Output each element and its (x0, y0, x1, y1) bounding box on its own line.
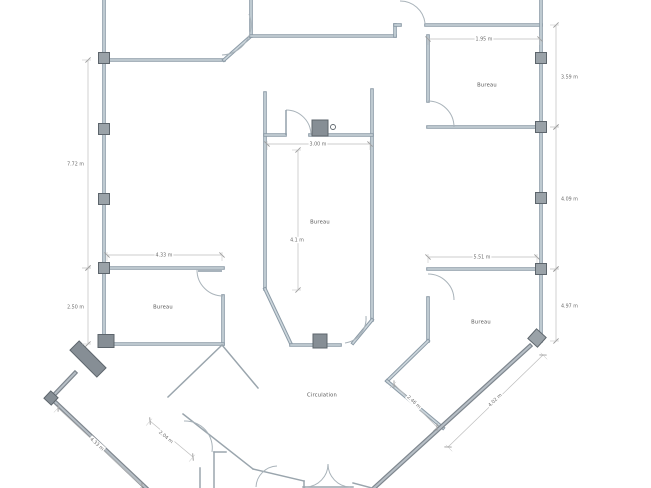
pillar (536, 122, 547, 133)
room-label-circulation: Circulation (307, 393, 337, 399)
dimension-label: 2.46 m (405, 394, 422, 410)
dimension-label: 1.95 m (476, 37, 493, 43)
dimension: 4.09 m (550, 124, 578, 271)
door-top-wall (400, 1, 425, 23)
dimension-label: 2.04 m (157, 430, 174, 446)
dimension-label: 3.59 m (561, 75, 578, 81)
pillar (99, 53, 110, 64)
dimension-label: 4.97 m (561, 304, 578, 310)
floor-plan-svg: 1.95 m3.59 m4.09 m4.97 m7.72 m2.50 m4.33… (0, 0, 651, 488)
dimension: 4.02 m (444, 353, 547, 451)
door-bureau-bottom-right (428, 274, 454, 300)
outlet-symbol (331, 125, 336, 130)
dimension: 1.95 m (425, 36, 542, 45)
pillar (99, 263, 110, 274)
pillar (99, 124, 110, 135)
door-bureau-center-top (286, 110, 311, 135)
dimension: 7.72 m (67, 57, 91, 270)
pillars-layer (44, 53, 547, 406)
wall-core (53, 373, 75, 396)
pillar (99, 194, 110, 205)
pillar (536, 264, 547, 275)
room-label-bureau-bottom-right: Bureau (471, 320, 491, 326)
dimension-label: 3.00 m (310, 142, 327, 148)
wall (168, 345, 222, 397)
wall-core (387, 341, 428, 381)
dimension-label: 2.50 m (67, 305, 84, 311)
dims-layer: 1.95 m3.59 m4.09 m4.97 m7.72 m2.50 m4.33… (54, 22, 578, 488)
door-bureau-top-right (428, 101, 454, 127)
dimension: 3.00 m (264, 141, 372, 150)
room-label-bureau-top-right: Bureau (477, 83, 497, 89)
dimension: 2.50 m (67, 265, 91, 346)
wall-core (265, 289, 291, 344)
entrance-double-door-left (306, 464, 328, 487)
dimension: 5.51 m (425, 254, 539, 263)
dimension: 4.97 m (550, 266, 578, 343)
pillar (98, 335, 114, 348)
pillar (536, 193, 547, 204)
dimension-label: 4.33 m (156, 253, 173, 259)
duct-box (312, 120, 328, 136)
doors-layer (184, 1, 454, 487)
dimension: 4.33 m (54, 404, 144, 488)
dimension-label: 7.72 m (67, 162, 84, 168)
door-bottom-small (256, 466, 277, 487)
dimension-label: 4.02 m (487, 392, 504, 408)
entrance-double-door-right (328, 464, 350, 487)
wall-core (374, 346, 530, 488)
wall (222, 345, 258, 388)
room-label-bureau-center: Bureau (310, 220, 330, 226)
pillar (536, 53, 547, 64)
door-bureau-center-bottom (345, 316, 366, 343)
dimension: 2.04 m (146, 417, 195, 461)
dimension-label: 4.09 m (561, 197, 578, 203)
walls-layer (53, 0, 541, 488)
room-label-bureau-left: Bureau (153, 305, 173, 311)
dim-extension (189, 455, 195, 462)
pillar (313, 334, 327, 348)
dimension: 3.59 m (550, 22, 578, 129)
door-bureau-left (197, 270, 223, 296)
floor-plan: 1.95 m3.59 m4.09 m4.97 m7.72 m2.50 m4.33… (0, 0, 651, 488)
dimension: 4.33 m (104, 252, 224, 261)
dimension-label: 5.51 m (474, 255, 491, 261)
dimension-label: 4.1 m (290, 238, 304, 244)
wall (353, 483, 372, 488)
dimension: 4.1 m (289, 147, 305, 292)
